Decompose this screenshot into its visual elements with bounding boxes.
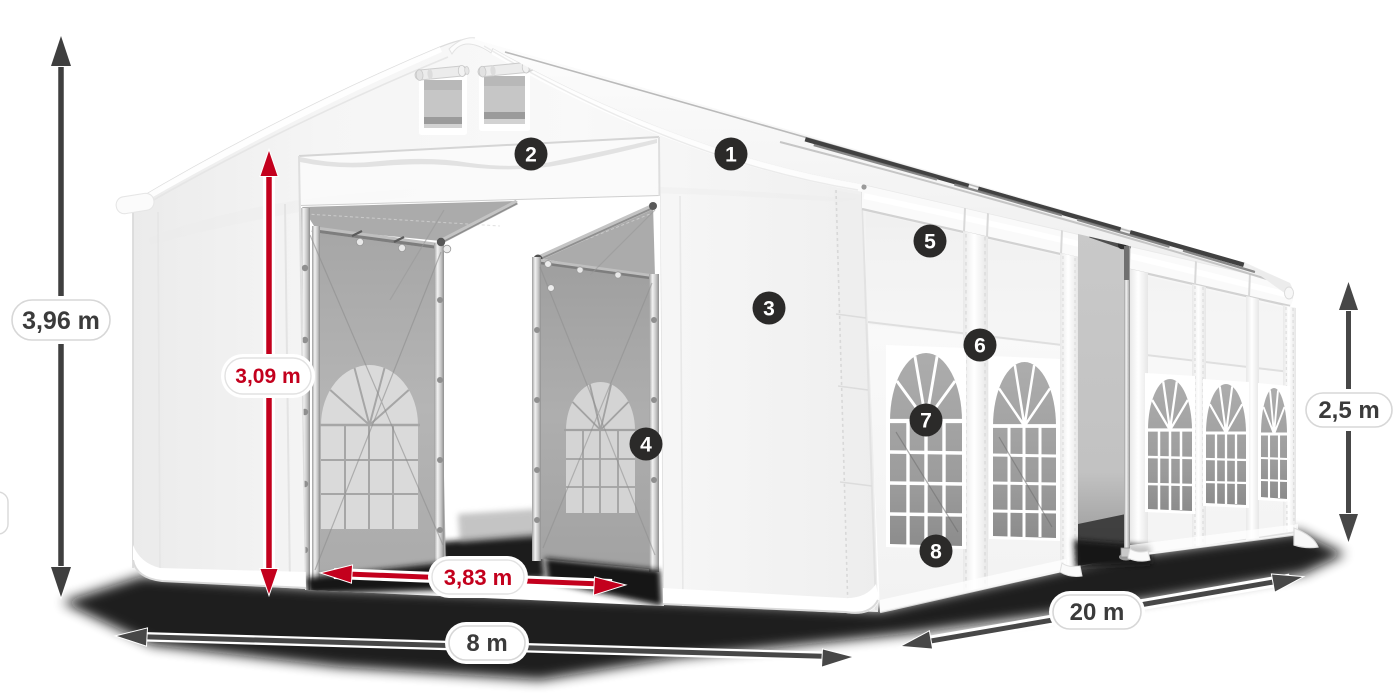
svg-text:2: 2 <box>525 144 537 167</box>
svg-text:2,5 m: 2,5 m <box>1318 397 1379 424</box>
svg-text:3,09 m: 3,09 m <box>235 365 300 388</box>
svg-text:6: 6 <box>974 335 986 358</box>
svg-text:7: 7 <box>920 410 932 433</box>
svg-text:8 m: 8 m <box>466 630 507 657</box>
svg-text:20 m: 20 m <box>1070 599 1125 626</box>
svg-text:8: 8 <box>930 541 942 564</box>
svg-text:4: 4 <box>640 434 652 457</box>
svg-text:1: 1 <box>725 144 737 167</box>
svg-text:3,96 m: 3,96 m <box>22 307 100 335</box>
svg-text:3,83 m: 3,83 m <box>444 565 513 590</box>
svg-text:5: 5 <box>924 231 936 254</box>
svg-text:3: 3 <box>763 298 775 321</box>
